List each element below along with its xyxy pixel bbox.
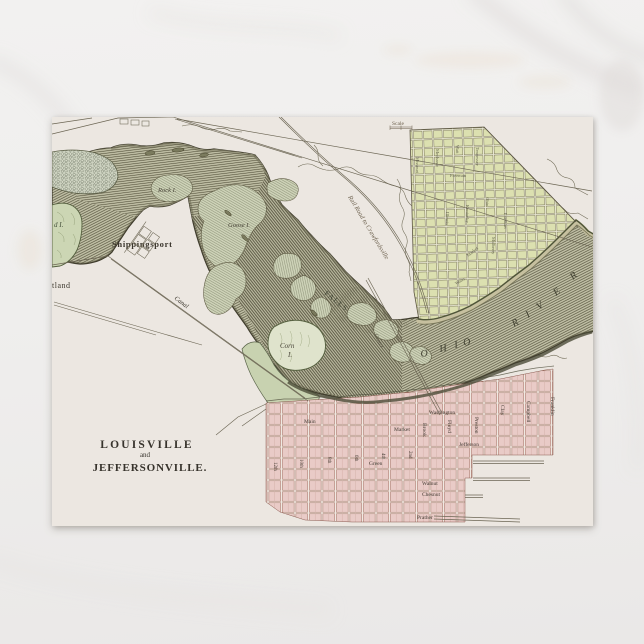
svg-text:Floyd: Floyd — [446, 420, 452, 433]
svg-text:Corn: Corn — [280, 342, 295, 350]
svg-text:Goose I.: Goose I. — [228, 222, 250, 229]
svg-text:Franklin: Franklin — [549, 397, 555, 416]
svg-text:Brook: Brook — [421, 423, 427, 437]
svg-text:12th: 12th — [272, 462, 277, 471]
svg-text:d I.: d I. — [54, 221, 64, 229]
svg-text:Walnut: Walnut — [422, 481, 438, 487]
svg-text:Mulberry: Mulberry — [491, 237, 496, 255]
svg-text:10th: 10th — [298, 459, 303, 468]
svg-text:Watt: Watt — [455, 145, 460, 154]
svg-text:Jefferson: Jefferson — [459, 441, 479, 448]
svg-text:Freeman: Freeman — [450, 173, 467, 178]
svg-text:Chesnut: Chesnut — [422, 492, 441, 498]
svg-text:and: and — [140, 451, 151, 459]
svg-text:6th: 6th — [353, 455, 358, 462]
svg-text:2nd: 2nd — [407, 451, 412, 459]
svg-text:Campbell: Campbell — [525, 401, 531, 423]
svg-text:4th: 4th — [380, 453, 385, 460]
svg-text:Ohio: Ohio — [485, 197, 490, 207]
svg-text:Washington: Washington — [429, 410, 455, 416]
svg-text:Market: Market — [394, 427, 410, 433]
svg-text:Green: Green — [369, 461, 383, 467]
svg-text:Tennessee: Tennessee — [475, 147, 480, 166]
svg-text:Preston: Preston — [473, 417, 479, 434]
svg-text:I.: I. — [287, 351, 292, 359]
svg-text:Clay: Clay — [499, 405, 505, 416]
svg-text:Rock I.: Rock I. — [157, 187, 177, 194]
svg-text:Franklin: Franklin — [503, 213, 508, 229]
svg-text:Missouri: Missouri — [415, 157, 420, 174]
svg-text:LOUISVILLE: LOUISVILLE — [100, 439, 194, 451]
svg-text:O: O — [420, 348, 429, 360]
svg-text:Scale: Scale — [392, 121, 404, 127]
svg-text:tland: tland — [52, 281, 71, 290]
svg-text:Illinois: Illinois — [445, 212, 450, 225]
svg-text:Main: Main — [304, 419, 316, 425]
svg-text:JEFFERSONVILLE.: JEFFERSONVILLE. — [93, 462, 208, 474]
svg-text:Prather: Prather — [417, 515, 433, 521]
svg-text:8th: 8th — [326, 457, 331, 464]
